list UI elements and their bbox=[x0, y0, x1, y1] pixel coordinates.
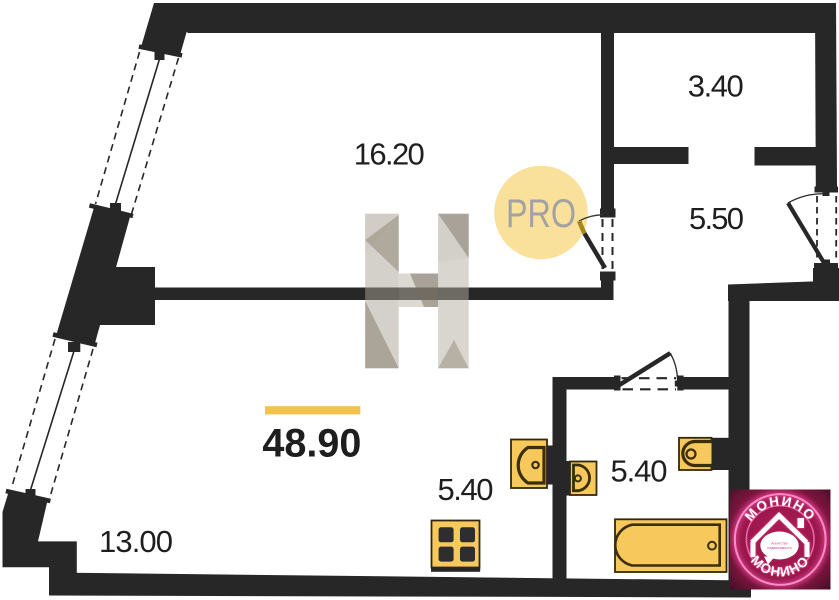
svg-text:3.40: 3.40 bbox=[688, 68, 744, 103]
svg-text:16.20: 16.20 bbox=[354, 136, 425, 171]
svg-text:недвижимости: недвижимости bbox=[767, 546, 791, 550]
svg-text:48.90: 48.90 bbox=[262, 422, 361, 466]
svg-text:5.50: 5.50 bbox=[689, 201, 744, 236]
svg-text:PRO: PRO bbox=[506, 192, 576, 236]
svg-text:Агентство: Агентство bbox=[771, 542, 788, 546]
svg-text:13.00: 13.00 bbox=[99, 524, 173, 559]
svg-text:5.40: 5.40 bbox=[438, 472, 494, 507]
svg-text:5.40: 5.40 bbox=[611, 454, 668, 489]
